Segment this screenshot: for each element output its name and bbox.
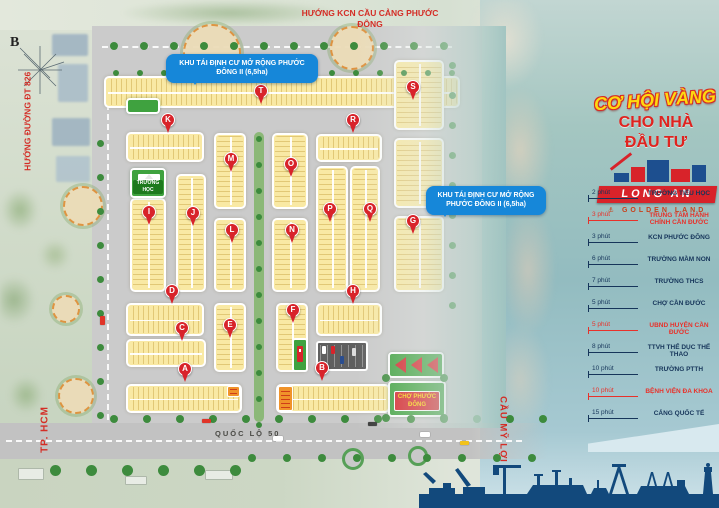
parked-car	[340, 356, 344, 364]
poi-name: TRƯỜNG MẦM NON	[640, 256, 718, 263]
poi-name: TTVH THỂ DỤC THỂ THAO	[640, 344, 718, 359]
pin-t[interactable]: T	[254, 84, 268, 98]
poi-time: 10 phút	[592, 387, 614, 394]
port-silhouette-icon	[419, 448, 719, 508]
tree-row	[256, 136, 262, 142]
tick-line	[588, 352, 638, 353]
poi-name: TRƯỜNG THCS	[640, 278, 718, 285]
poi-row: 5 phút CHỢ CẦN ĐƯỚC	[588, 297, 719, 317]
block-p	[316, 166, 348, 292]
roundabout	[342, 448, 364, 470]
callout-resettlement-2: KHU TÁI ĐỊNH CƯ MỞ RỘNG PHƯỚC ĐÔNG II (6…	[426, 186, 546, 215]
tree-row	[110, 415, 118, 423]
pin-s[interactable]: S	[406, 80, 420, 94]
poi-name: BỆNH VIỆN ĐA KHOA	[640, 388, 718, 395]
poi-name: CẢNG QUỐC TẾ	[640, 410, 718, 417]
parked-car	[322, 346, 326, 354]
poi-name: TRƯỜNG PTTH	[640, 366, 718, 373]
factory-building	[52, 118, 90, 146]
compass-icon: B	[6, 28, 68, 98]
factory-building	[56, 156, 90, 182]
block-d	[126, 303, 204, 336]
gas-station	[292, 338, 308, 372]
poi-time: 5 phút	[592, 321, 610, 328]
market-sign: CHỢ PHƯỚC ĐÔNG	[394, 391, 440, 411]
tree-row	[97, 140, 104, 147]
poi-row: 2 phút TRƯỜNG TIỂU HỌC	[588, 187, 719, 207]
tick-line	[588, 220, 638, 221]
car	[273, 436, 283, 441]
block-a-orange-lot	[227, 386, 240, 397]
tick-line	[588, 418, 638, 419]
school-block: TRƯỜNG HỌC	[130, 168, 166, 198]
market-stalls	[388, 352, 444, 378]
car	[460, 441, 469, 445]
poi-row: 3 phút KCN PHƯỚC ĐÔNG	[588, 231, 719, 251]
poi-row: 8 phút TTVH THỂ DỤC THỂ THAO	[588, 341, 719, 361]
market-block: CHỢ PHƯỚC ĐÔNG	[388, 381, 446, 417]
park-circle	[52, 295, 80, 323]
poi-time: 10 phút	[592, 365, 614, 372]
green-park-block	[126, 98, 160, 114]
block-c	[126, 339, 206, 367]
poi-row: 15 phút CẢNG QUỐC TẾ	[588, 407, 719, 427]
tree-row	[50, 465, 61, 476]
pin-k[interactable]: K	[161, 113, 175, 127]
pin-a[interactable]: A	[178, 362, 192, 376]
poi-time: 2 phút	[592, 189, 610, 196]
small-building	[125, 476, 147, 485]
road-marking	[6, 440, 522, 442]
tick-line	[588, 242, 638, 243]
callout-resettlement-1: KHU TÁI ĐỊNH CƯ MỞ RỘNG PHƯỚC ĐÔNG II (6…	[166, 54, 318, 83]
block-h	[316, 303, 382, 336]
direction-label-tphcm: TP. HCM	[40, 397, 51, 463]
promo-headline-3: ĐẦU TƯ	[594, 134, 718, 152]
poi-name: TRUNG TÂM HÀNH CHÍNH CẦN ĐƯỚC	[640, 212, 718, 227]
poi-row: 6 phút TRƯỜNG MẦM NON	[588, 253, 719, 273]
stall-icon	[411, 357, 422, 373]
pin-b[interactable]: B	[315, 361, 329, 375]
direction-label-kcn-cau-cang: HƯỚNG KCN CẦU CẢNG PHƯỚC ĐÔNG	[296, 8, 444, 30]
car	[202, 419, 211, 423]
pin-d[interactable]: D	[165, 284, 179, 298]
road-marking	[102, 46, 452, 48]
block-s	[394, 60, 444, 130]
poi-time: 5 phút	[592, 299, 610, 306]
tick-line	[588, 330, 638, 331]
tree-row	[113, 70, 119, 76]
pin-r[interactable]: R	[346, 113, 360, 127]
tick-line	[588, 374, 638, 375]
highway-label: QUỐC LỘ 50	[215, 429, 280, 438]
pin-q[interactable]: Q	[363, 202, 377, 216]
pin-m[interactable]: M	[224, 152, 238, 166]
park-circle	[63, 186, 103, 226]
poi-row: 10 phút BỆNH VIỆN ĐA KHOA	[588, 385, 719, 405]
small-building	[18, 468, 44, 480]
poi-time: 3 phút	[592, 211, 610, 218]
poi-name: TRƯỜNG TIỂU HỌC	[640, 190, 718, 197]
poi-time: 3 phút	[592, 233, 610, 240]
stall-icon	[395, 357, 406, 373]
svg-text:B: B	[10, 35, 19, 50]
poi-time: 7 phút	[592, 277, 610, 284]
tree-row	[248, 454, 256, 462]
pin-l[interactable]: L	[225, 223, 239, 237]
pin-f[interactable]: F	[286, 303, 300, 317]
tick-line	[588, 308, 638, 309]
tick-line	[588, 396, 638, 397]
road-median	[254, 132, 264, 422]
tick-line	[588, 198, 638, 199]
pin-i[interactable]: I	[142, 205, 156, 219]
masterplan-poster: B QUỐC LỘ 50 TRƯỜNG H	[0, 0, 719, 508]
tree-row	[449, 62, 456, 69]
block-a	[126, 384, 242, 413]
pin-j[interactable]: J	[186, 206, 200, 220]
parked-car	[331, 346, 335, 354]
car	[100, 316, 105, 325]
poi-name: KCN PHƯỚC ĐÔNG	[640, 234, 718, 241]
pin-n[interactable]: N	[285, 223, 299, 237]
direction-label-dt826: HƯỚNG ĐƯỜNG ĐT 826	[23, 65, 34, 177]
poi-time: 6 phút	[592, 255, 610, 262]
tree-row	[382, 374, 390, 382]
block-q	[350, 166, 380, 292]
poi-row: 7 phút TRƯỜNG THCS	[588, 275, 719, 295]
pin-h[interactable]: H	[346, 284, 360, 298]
pin-e[interactable]: E	[223, 318, 237, 332]
block-b	[276, 384, 390, 413]
pin-o[interactable]: O	[284, 157, 298, 171]
park-circle	[58, 378, 94, 414]
poi-name: CHỢ CẦN ĐƯỚC	[640, 300, 718, 307]
tick-line	[588, 264, 638, 265]
car	[368, 422, 377, 426]
promo-headline-2: CHO NHÀ	[594, 114, 718, 132]
plaza-circle	[330, 26, 374, 70]
tree-row	[110, 42, 118, 50]
block-g	[394, 216, 444, 292]
container-port-logo-icon	[612, 156, 712, 184]
small-building	[205, 470, 233, 480]
poi-row: 5 phút UBND HUYỆN CẦN ĐƯỚC	[588, 319, 719, 339]
poi-time: 15 phút	[592, 409, 614, 416]
block-j	[176, 174, 206, 292]
road-marking	[107, 84, 109, 420]
poi-row: 10 phút TRƯỜNG PTTH	[588, 363, 719, 383]
school-label: TRƯỜNG HỌC	[133, 180, 163, 194]
pin-c[interactable]: C	[175, 321, 189, 335]
tick-line	[588, 286, 638, 287]
block-r	[316, 134, 382, 162]
poi-time: 8 phút	[592, 343, 610, 350]
poi-name: UBND HUYỆN CẦN ĐƯỚC	[640, 322, 718, 337]
pin-g[interactable]: G	[406, 214, 420, 228]
pin-p[interactable]: P	[323, 202, 337, 216]
block-b-orange-lot	[278, 386, 293, 411]
stall-icon	[427, 357, 438, 373]
parked-car	[352, 348, 356, 356]
car	[420, 432, 430, 437]
block-k	[126, 132, 204, 162]
poi-row: 3 phút TRUNG TÂM HÀNH CHÍNH CẦN ĐƯỚC	[588, 209, 719, 229]
